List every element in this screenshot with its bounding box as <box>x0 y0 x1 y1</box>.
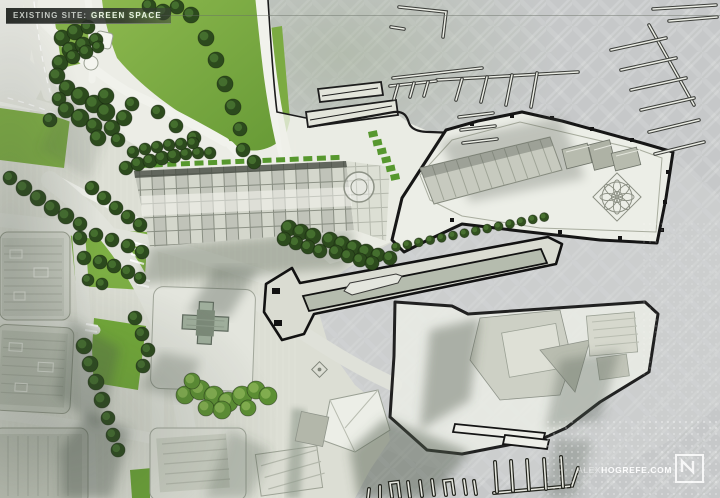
tree <box>506 220 515 229</box>
tree <box>225 99 241 115</box>
tree <box>170 0 184 14</box>
tree <box>198 30 214 46</box>
tree <box>151 105 165 119</box>
tree <box>121 210 135 224</box>
round-atrium <box>344 172 374 202</box>
tree <box>125 97 139 111</box>
tree <box>98 88 114 104</box>
tree <box>383 251 397 265</box>
tree <box>233 122 247 136</box>
hedge <box>181 161 190 166</box>
tree <box>169 119 183 133</box>
hedge <box>208 160 217 165</box>
tree <box>403 240 412 249</box>
hedge <box>330 155 339 160</box>
hedge <box>317 155 326 160</box>
tree <box>97 103 115 121</box>
hedge <box>262 158 271 163</box>
hedge <box>194 160 203 165</box>
site-plan-image: EXISTING SITE: GREEN SPACE ALEXHOGREFE.C… <box>0 0 720 498</box>
site-plan-canvas <box>0 0 720 498</box>
tree <box>107 259 121 273</box>
tree <box>133 218 147 232</box>
tree <box>449 231 458 240</box>
hedge <box>276 157 285 162</box>
tree <box>483 224 492 233</box>
tree <box>217 76 233 92</box>
tree <box>365 256 379 270</box>
tree <box>139 143 151 155</box>
tree <box>494 222 503 231</box>
tree <box>517 217 526 226</box>
tree <box>109 201 123 215</box>
tree <box>111 133 125 147</box>
tree <box>540 213 549 222</box>
tree <box>79 45 93 59</box>
tree <box>127 146 139 158</box>
tree <box>277 232 291 246</box>
tree <box>471 226 480 235</box>
hedge <box>303 156 312 161</box>
ah-monogram-icon <box>675 454 704 483</box>
tree <box>414 238 423 247</box>
tree <box>460 229 469 238</box>
tree <box>175 138 187 150</box>
watermark-text-light: ALEX <box>577 465 601 475</box>
tree <box>90 130 106 146</box>
tree <box>426 236 435 245</box>
hedge <box>235 159 244 164</box>
hedge <box>222 159 231 164</box>
tree <box>92 41 104 53</box>
watermark-text-bold: HOGREFE.COM <box>601 465 672 475</box>
tree <box>151 141 163 153</box>
header-rule-line <box>148 15 720 16</box>
tree <box>247 155 261 169</box>
tree <box>236 143 250 157</box>
title-highlight: GREEN SPACE <box>91 11 162 20</box>
tree <box>187 137 199 149</box>
tree <box>204 147 216 159</box>
tree <box>392 243 401 252</box>
tree <box>97 191 111 205</box>
tree <box>528 215 537 224</box>
watermark: ALEXHOGREFE.COM <box>577 465 672 475</box>
tree <box>116 110 132 126</box>
tree <box>121 239 135 253</box>
title-prefix: EXISTING SITE: <box>13 11 87 20</box>
tree <box>208 52 224 68</box>
tree <box>135 245 149 259</box>
tree <box>163 139 175 151</box>
tree <box>437 233 446 242</box>
title-bar: EXISTING SITE: GREEN SPACE <box>6 8 171 24</box>
hedge <box>290 157 299 162</box>
tree <box>105 233 119 247</box>
